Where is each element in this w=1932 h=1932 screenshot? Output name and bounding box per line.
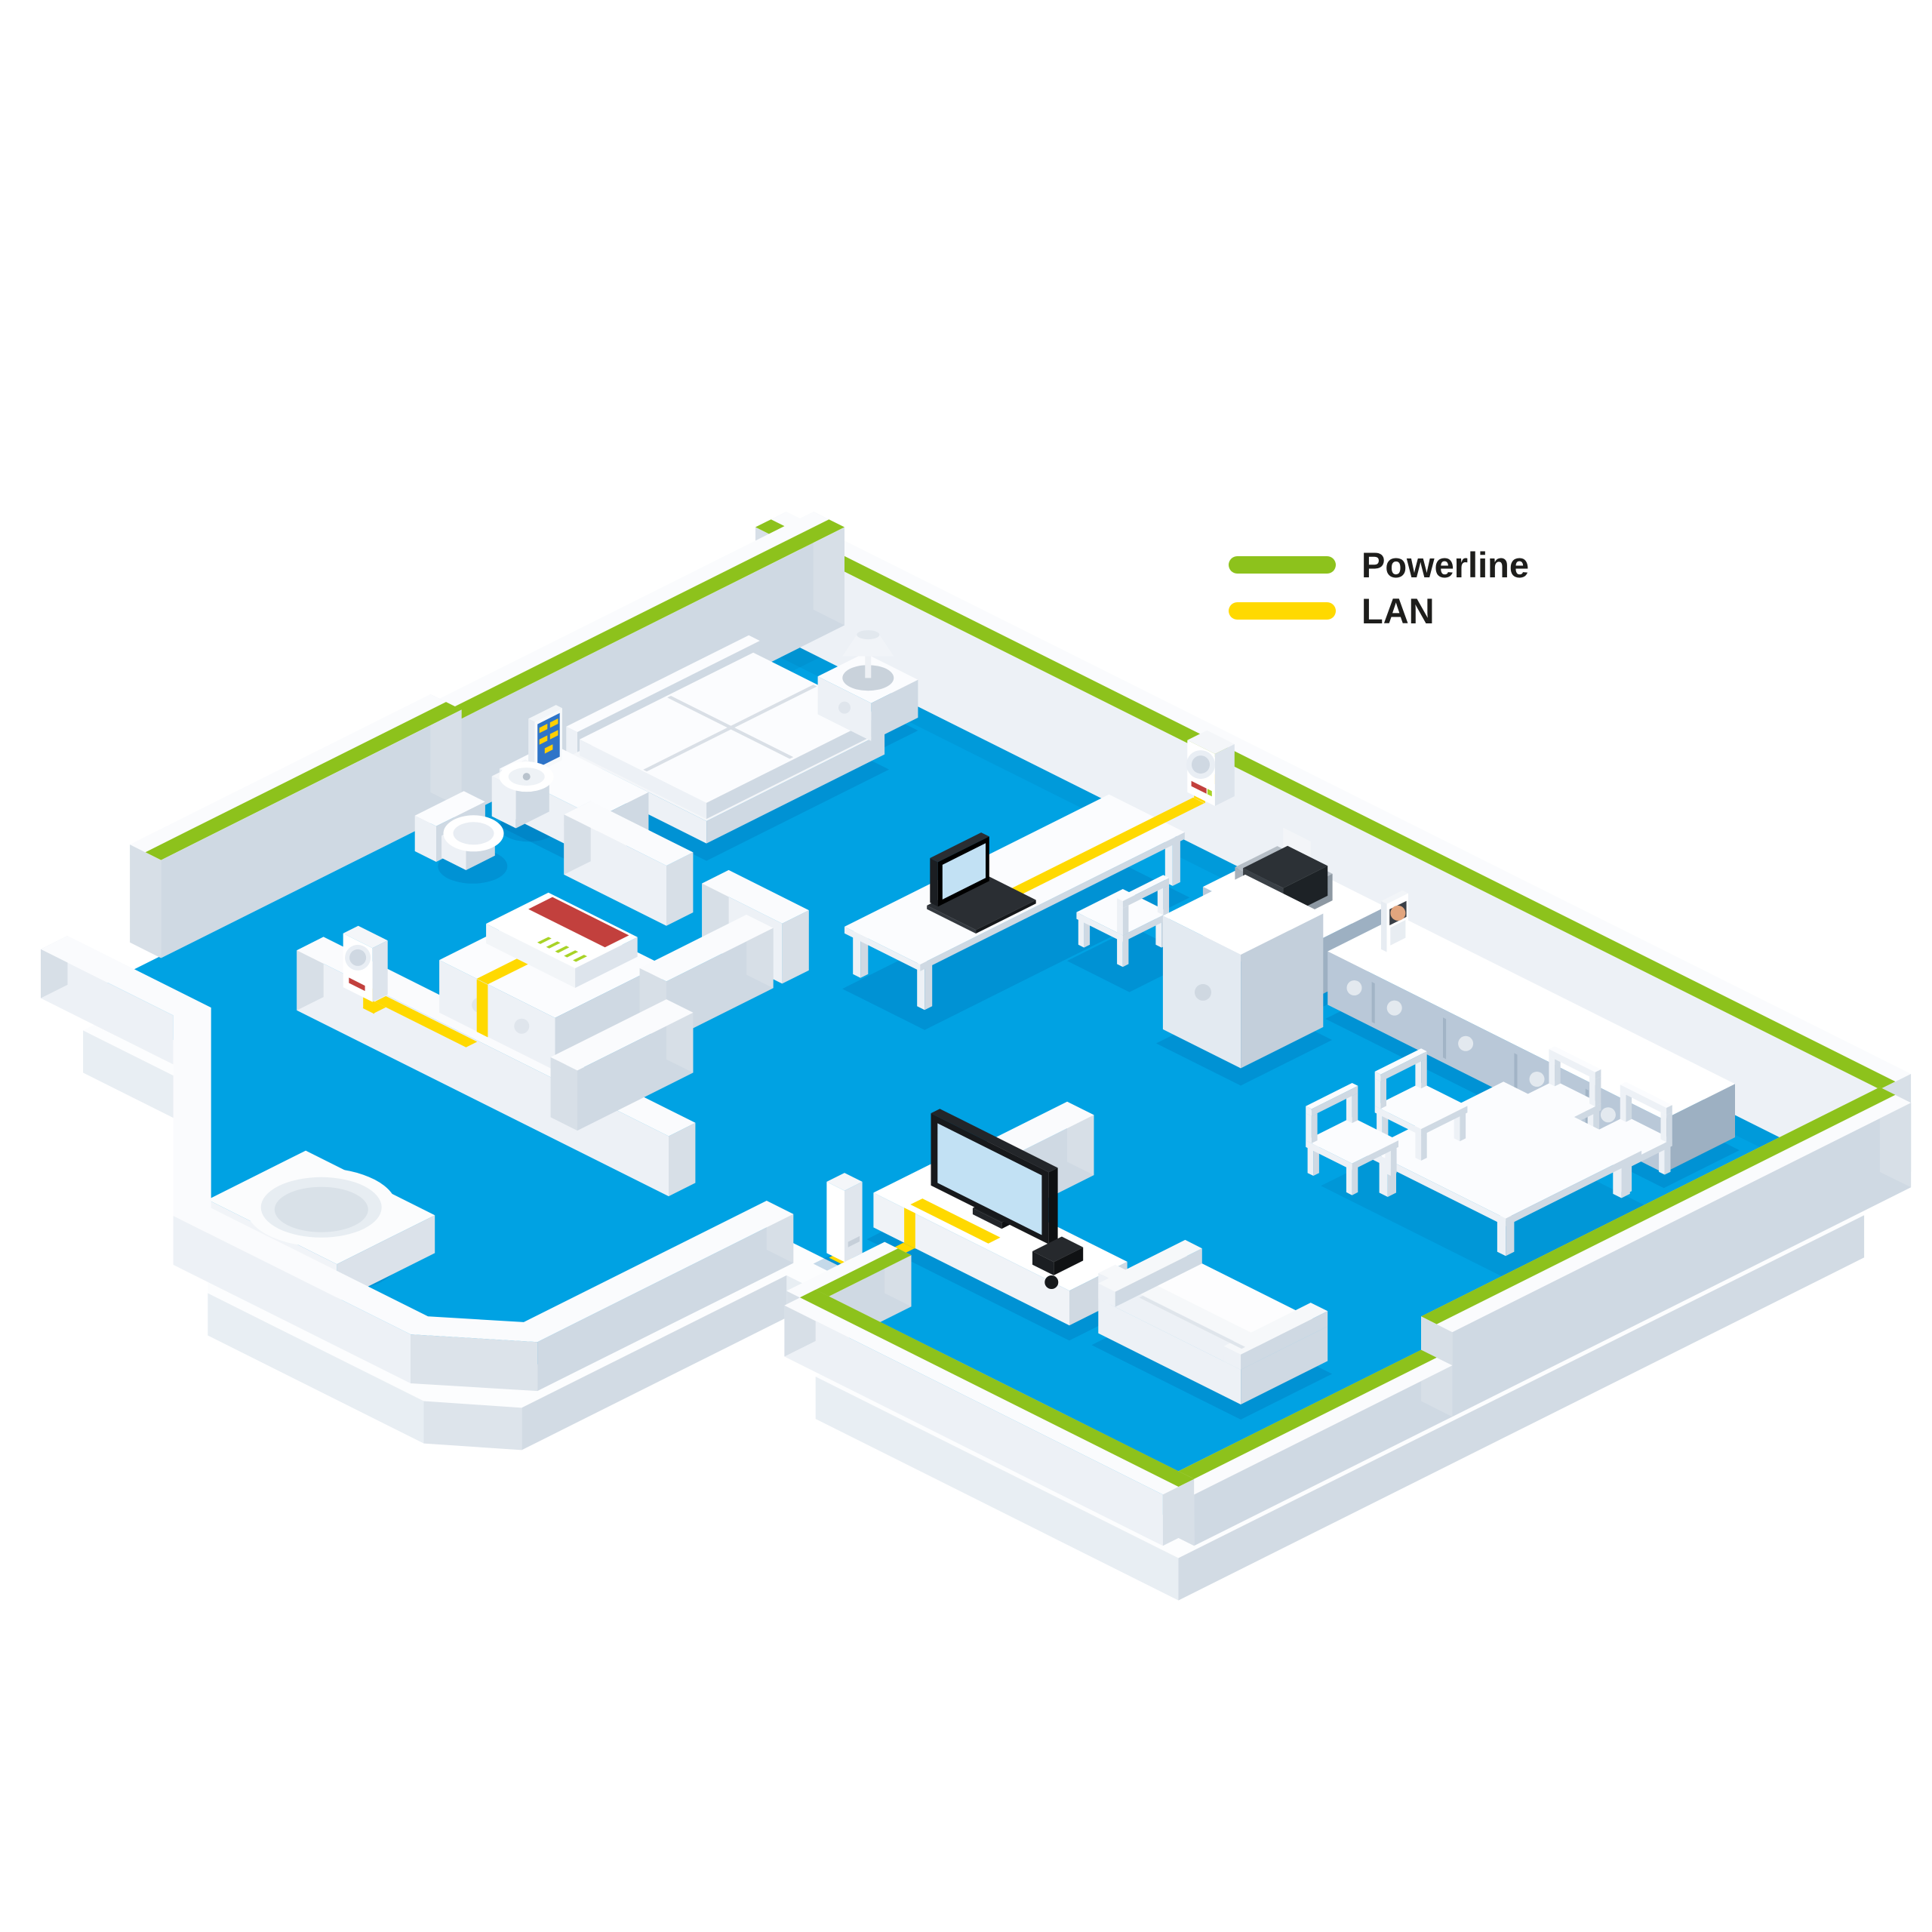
shape xyxy=(1421,1132,1427,1161)
shape xyxy=(1049,1168,1058,1244)
shape xyxy=(1421,1059,1427,1089)
shape xyxy=(857,630,879,639)
shape xyxy=(1620,1092,1626,1122)
shape xyxy=(1215,744,1235,806)
shape xyxy=(1595,1076,1601,1106)
shape xyxy=(1346,1167,1352,1195)
shape xyxy=(1458,1036,1473,1051)
shape xyxy=(1665,1146,1671,1175)
shape xyxy=(1375,1078,1381,1109)
shape xyxy=(349,949,366,966)
shape xyxy=(1601,1107,1616,1122)
shape xyxy=(1661,1112,1667,1143)
shape xyxy=(1352,1093,1358,1123)
shape xyxy=(1530,1072,1545,1087)
shape xyxy=(1312,1113,1318,1143)
shape xyxy=(844,1182,863,1262)
shape xyxy=(514,1019,529,1034)
shape xyxy=(1443,1017,1446,1059)
shape xyxy=(1666,1112,1672,1143)
shape xyxy=(1163,885,1169,915)
shape xyxy=(1306,1113,1312,1143)
powerline-adapter-office xyxy=(1186,731,1235,806)
shape xyxy=(904,1207,915,1249)
illustration-stage: Powerline LAN xyxy=(0,0,1932,1932)
lan-swatch xyxy=(1229,602,1336,620)
shape xyxy=(838,702,851,714)
shape xyxy=(1117,906,1123,936)
shape xyxy=(1347,980,1362,995)
shape xyxy=(1195,984,1211,1001)
shape xyxy=(1308,1147,1314,1176)
shape xyxy=(1391,1147,1397,1176)
powerline-swatch xyxy=(1229,556,1336,574)
legend-item-lan: LAN xyxy=(1229,591,1529,630)
shape xyxy=(1549,1057,1555,1087)
powerline-adapter-living xyxy=(826,1173,862,1262)
shape xyxy=(865,656,871,678)
shape xyxy=(130,844,161,958)
shape xyxy=(1123,906,1129,936)
shape xyxy=(1117,938,1123,967)
shape xyxy=(424,1401,522,1451)
shape xyxy=(1123,938,1129,967)
shape xyxy=(1387,1001,1402,1016)
shape xyxy=(1381,901,1387,952)
shape xyxy=(1380,1078,1386,1109)
powerline-label: Powerline xyxy=(1361,544,1529,586)
shape xyxy=(1044,1275,1058,1289)
shape xyxy=(930,858,938,906)
shape xyxy=(1460,1112,1466,1141)
shape xyxy=(1372,982,1375,1023)
shape xyxy=(275,1187,368,1232)
lan-label: LAN xyxy=(1361,590,1435,632)
shape xyxy=(411,1334,537,1391)
shape xyxy=(924,964,932,1010)
shape xyxy=(1078,919,1084,948)
shape xyxy=(1390,906,1405,921)
apartment-isometric-illustration xyxy=(0,0,1932,1932)
legend: Powerline LAN xyxy=(1229,545,1529,630)
cordless-phone xyxy=(1381,891,1408,952)
shape xyxy=(1352,1167,1358,1195)
shape xyxy=(1192,755,1210,774)
shape xyxy=(1589,1076,1595,1106)
shape xyxy=(477,980,488,1038)
powerline-adapter-hall xyxy=(343,926,388,1002)
shape xyxy=(373,940,388,1001)
legend-item-powerline: Powerline xyxy=(1229,545,1529,584)
shape xyxy=(523,773,531,780)
shape xyxy=(1173,840,1180,886)
shape xyxy=(1415,1132,1421,1161)
shape xyxy=(454,822,494,844)
shape xyxy=(826,1182,844,1262)
